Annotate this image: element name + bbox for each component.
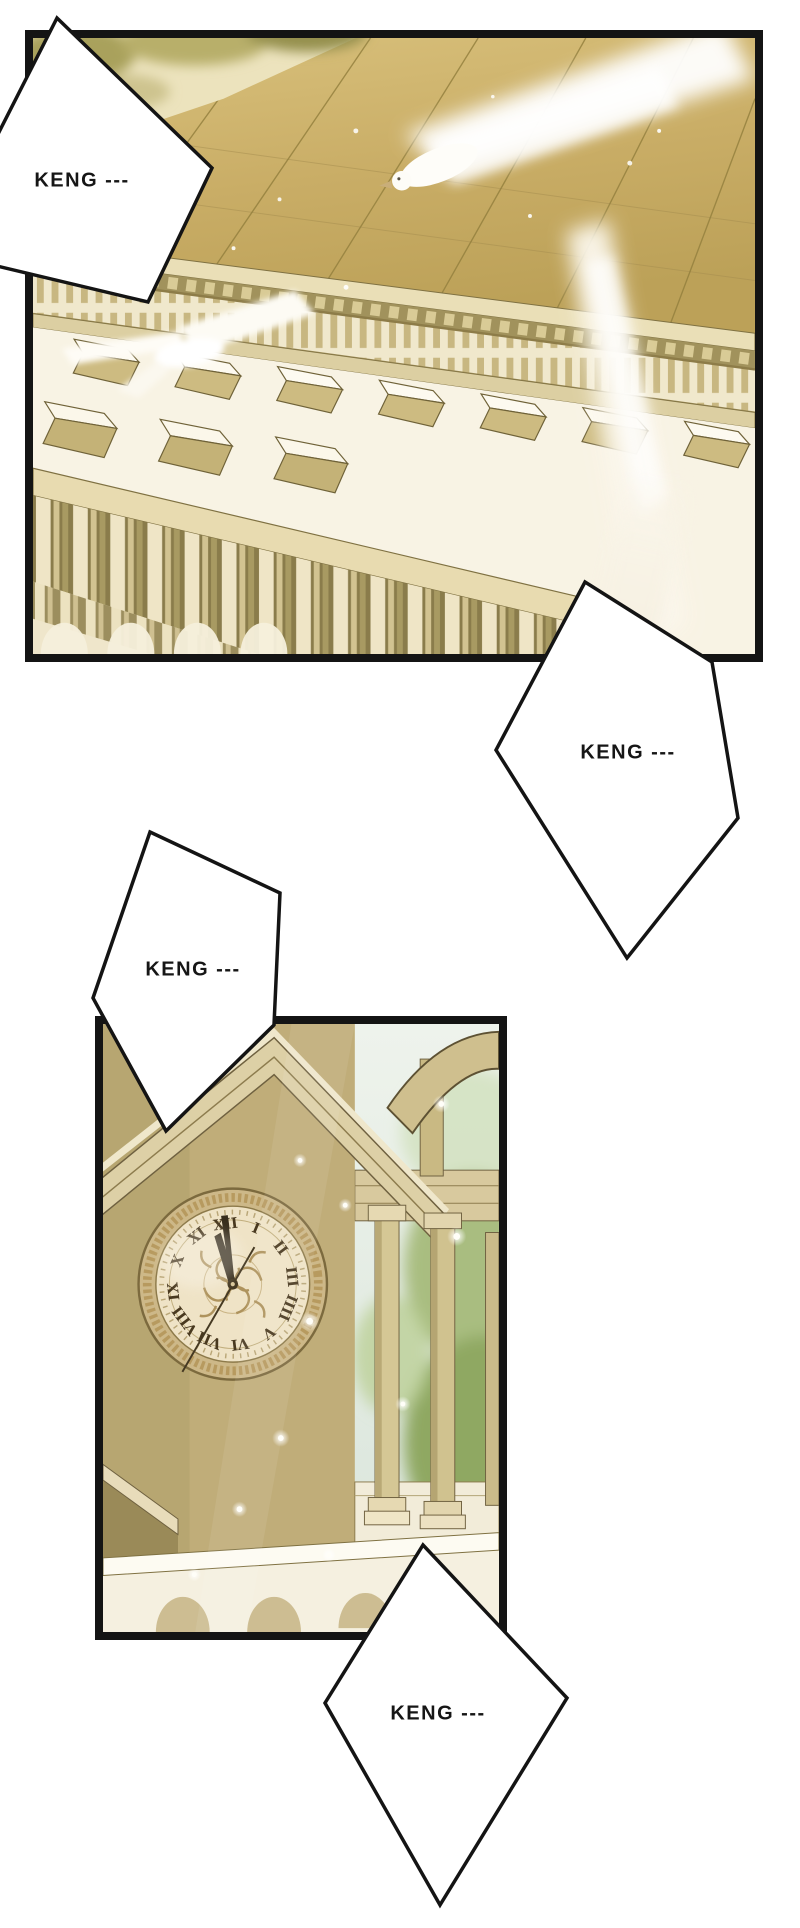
sfx-bubble-3 [93, 832, 280, 1131]
sfx-bubble-1 [0, 18, 212, 302]
sfx-text-keng-3: KENG --- [145, 959, 240, 982]
sfx-text-keng-4: KENG --- [390, 1703, 485, 1726]
sfx-text-keng-1: KENG --- [34, 170, 129, 193]
speech-bubble-layer [0, 0, 800, 1928]
sfx-bubble-2 [496, 582, 738, 958]
sfx-text-keng-2: KENG --- [580, 742, 675, 765]
comic-page: XII I II III IIII V VI VII VIII IX X XI [0, 0, 800, 1928]
